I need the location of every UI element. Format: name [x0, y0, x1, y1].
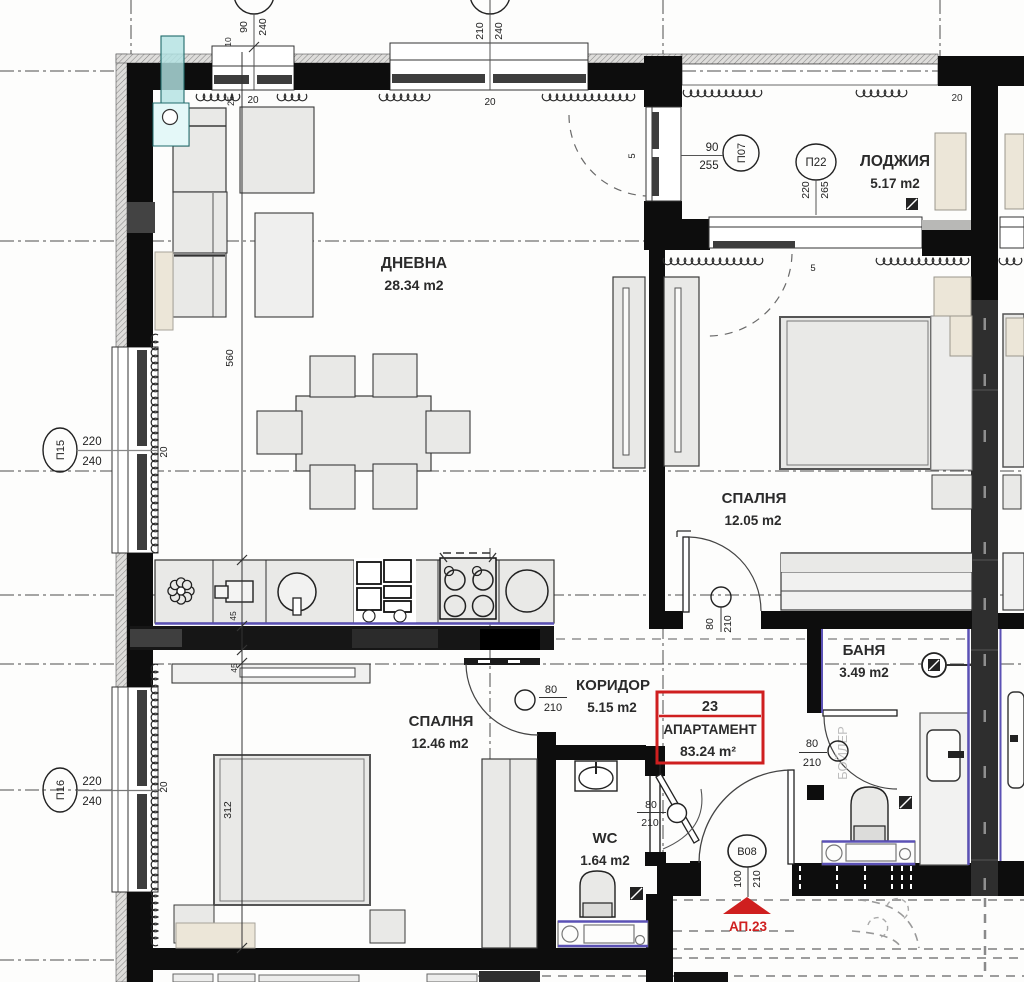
- svg-text:220: 220: [82, 776, 101, 788]
- svg-text:1.64 m2: 1.64 m2: [580, 853, 630, 868]
- svg-text:20: 20: [951, 93, 963, 104]
- svg-text:12.05 m2: 12.05 m2: [724, 513, 781, 528]
- svg-text:240: 240: [82, 456, 101, 468]
- svg-text:5.17 m2: 5.17 m2: [870, 176, 920, 191]
- svg-text:90: 90: [238, 21, 250, 33]
- svg-text:80: 80: [806, 738, 818, 750]
- svg-text:СПАЛНЯ: СПАЛНЯ: [722, 490, 787, 507]
- svg-text:80: 80: [545, 684, 557, 696]
- svg-text:240: 240: [257, 18, 269, 36]
- svg-text:10: 10: [223, 37, 233, 47]
- svg-text:210: 210: [722, 615, 734, 633]
- svg-text:3.49 m2: 3.49 m2: [839, 665, 889, 680]
- svg-text:312: 312: [222, 801, 234, 819]
- svg-text:5: 5: [627, 153, 638, 158]
- svg-text:АПАРТАМЕНТ: АПАРТАМЕНТ: [663, 722, 757, 737]
- svg-text:240: 240: [493, 22, 505, 40]
- svg-text:25: 25: [226, 96, 236, 106]
- svg-text:210: 210: [544, 702, 562, 714]
- svg-text:90: 90: [706, 142, 719, 154]
- svg-text:28.34 m2: 28.34 m2: [384, 277, 443, 293]
- svg-text:83.24 m²: 83.24 m²: [680, 743, 736, 759]
- svg-text:100: 100: [732, 870, 744, 888]
- svg-text:80: 80: [645, 799, 657, 811]
- svg-text:П15: П15: [55, 440, 67, 460]
- svg-text:20: 20: [159, 781, 170, 793]
- svg-text:П16: П16: [55, 780, 67, 800]
- svg-text:210: 210: [641, 817, 659, 829]
- svg-text:П07: П07: [736, 143, 748, 163]
- svg-text:220: 220: [800, 181, 812, 199]
- svg-text:5: 5: [810, 263, 815, 274]
- svg-text:КОРИДОР: КОРИДОР: [576, 677, 650, 694]
- svg-text:СПАЛНЯ: СПАЛНЯ: [409, 713, 474, 730]
- svg-text:210: 210: [751, 870, 763, 888]
- svg-text:АП.23: АП.23: [729, 919, 768, 934]
- svg-text:255: 255: [699, 160, 718, 172]
- svg-text:560: 560: [224, 349, 236, 367]
- svg-text:В08: В08: [737, 846, 757, 858]
- svg-text:45: 45: [228, 611, 238, 621]
- svg-text:П22: П22: [805, 157, 826, 169]
- svg-text:240: 240: [82, 796, 101, 808]
- svg-text:20: 20: [247, 95, 259, 106]
- svg-text:5.15 m2: 5.15 m2: [587, 700, 637, 715]
- svg-text:БАНЯ: БАНЯ: [843, 642, 886, 659]
- svg-text:12.46 m2: 12.46 m2: [411, 736, 468, 751]
- svg-text:80: 80: [704, 618, 716, 630]
- svg-text:23: 23: [702, 699, 718, 715]
- svg-text:WC: WC: [593, 830, 618, 847]
- svg-text:20: 20: [159, 446, 170, 458]
- svg-text:20: 20: [484, 97, 496, 108]
- svg-text:ДНЕВНА: ДНЕВНА: [381, 255, 447, 272]
- svg-text:ЛОДЖИЯ: ЛОДЖИЯ: [860, 153, 930, 170]
- svg-text:210: 210: [803, 757, 821, 769]
- svg-text:265: 265: [819, 181, 831, 199]
- svg-text:45: 45: [229, 663, 239, 673]
- svg-text:220: 220: [82, 436, 101, 448]
- svg-text:210: 210: [474, 22, 486, 40]
